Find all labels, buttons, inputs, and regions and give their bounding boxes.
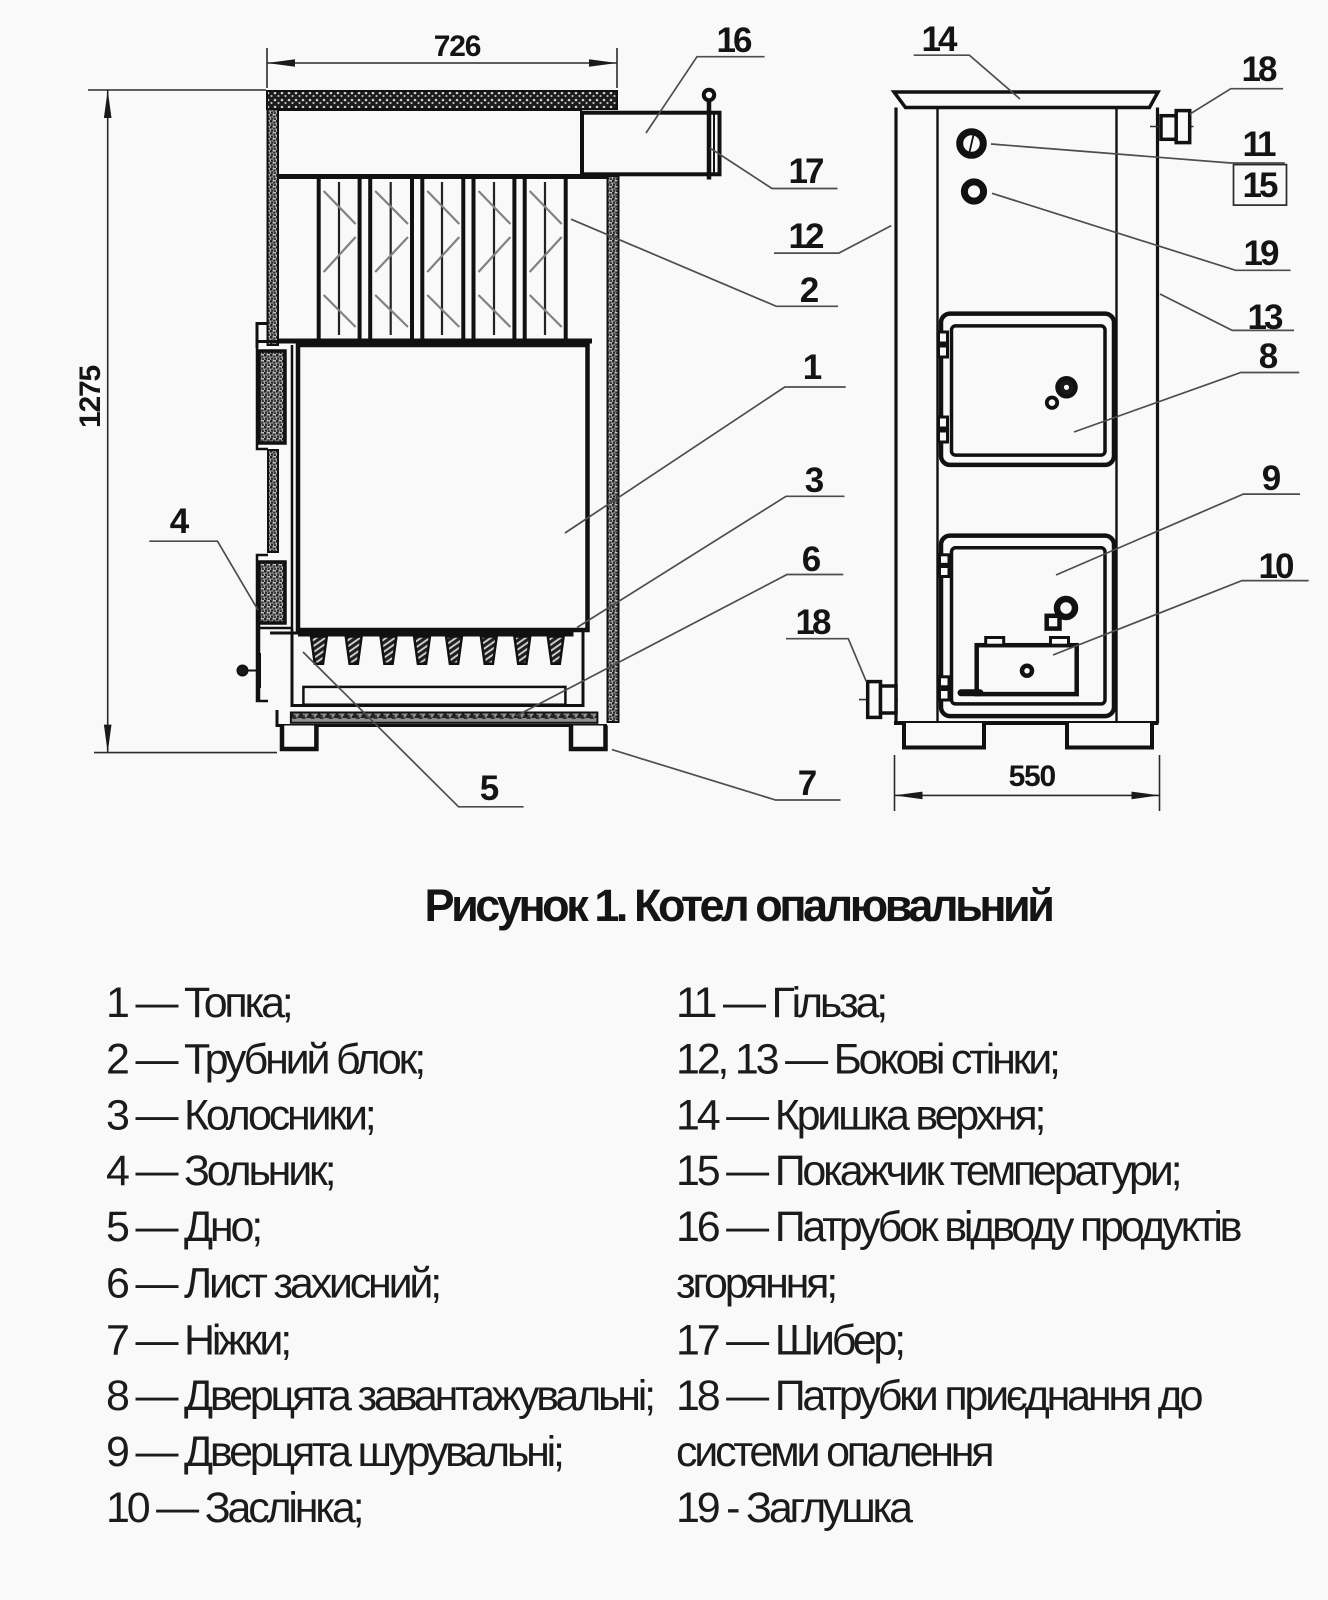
svg-text:9 — Дверцята шурувальні;: 9 — Дверцята шурувальні; (106, 1428, 562, 1476)
svg-text:2 — Трубний блок;: 2 — Трубний блок; (106, 1036, 423, 1084)
svg-text:18 — Патрубки приєднання до: 18 — Патрубки приєднання до (676, 1372, 1203, 1420)
svg-text:згоряння;: згоряння; (676, 1259, 835, 1307)
svg-text:10: 10 (1259, 547, 1294, 586)
svg-text:6: 6 (802, 540, 821, 579)
svg-text:726: 726 (434, 30, 481, 63)
svg-text:14: 14 (922, 20, 958, 59)
svg-text:16 — Патрубок відводу продукті: 16 — Патрубок відводу продуктів (676, 1203, 1241, 1251)
svg-text:15: 15 (1243, 166, 1278, 205)
svg-text:2: 2 (800, 271, 819, 310)
svg-text:15 — Покажчик температури;: 15 — Покажчик температури; (676, 1147, 1180, 1195)
svg-text:1275: 1275 (74, 366, 107, 428)
svg-text:3: 3 (805, 461, 824, 500)
svg-text:11 — Гільза;: 11 — Гільза; (676, 979, 885, 1027)
svg-text:11: 11 (1243, 125, 1277, 164)
svg-text:7 — Ніжки;: 7 — Ніжки; (106, 1316, 289, 1364)
svg-text:17: 17 (789, 152, 823, 191)
svg-text:8 — Дверцята завантажувальні;: 8 — Дверцята завантажувальні; (106, 1372, 653, 1420)
svg-text:8: 8 (1259, 337, 1278, 376)
svg-text:7: 7 (798, 764, 816, 803)
svg-text:4 — Зольник;: 4 — Зольник; (106, 1147, 334, 1195)
svg-text:550: 550 (1009, 760, 1056, 793)
svg-text:5: 5 (480, 769, 499, 808)
svg-text:19: 19 (1244, 234, 1279, 273)
svg-text:10 — Заслінка;: 10 — Заслінка; (106, 1484, 362, 1532)
svg-text:6 — Лист захисний;: 6 — Лист захисний; (106, 1259, 439, 1307)
svg-text:16: 16 (717, 21, 752, 60)
svg-text:12: 12 (789, 217, 824, 256)
svg-text:9: 9 (1262, 459, 1281, 498)
svg-text:18: 18 (1242, 50, 1277, 89)
svg-text:1 — Топка;: 1 — Топка; (106, 979, 291, 1027)
svg-text:18: 18 (796, 603, 831, 642)
svg-text:17 — Шибер;: 17 — Шибер; (676, 1316, 903, 1364)
svg-text:12, 13 — Бокові стінки;: 12, 13 — Бокові стінки; (676, 1036, 1058, 1084)
svg-text:5 — Дно;: 5 — Дно; (106, 1203, 260, 1251)
svg-text:13: 13 (1248, 298, 1283, 337)
svg-text:14 — Кришка верхня;: 14 — Кришка верхня; (676, 1092, 1043, 1140)
svg-text:Рисунок 1. Котел опалювальний: Рисунок 1. Котел опалювальний (425, 880, 1053, 931)
svg-text:системи опалення: системи опалення (676, 1428, 992, 1476)
svg-text:4: 4 (170, 502, 190, 541)
svg-text:3 — Колосники;: 3 — Колосники; (106, 1092, 374, 1140)
svg-text:1: 1 (803, 348, 822, 387)
svg-text:19 - Заглушка: 19 - Заглушка (676, 1484, 913, 1532)
